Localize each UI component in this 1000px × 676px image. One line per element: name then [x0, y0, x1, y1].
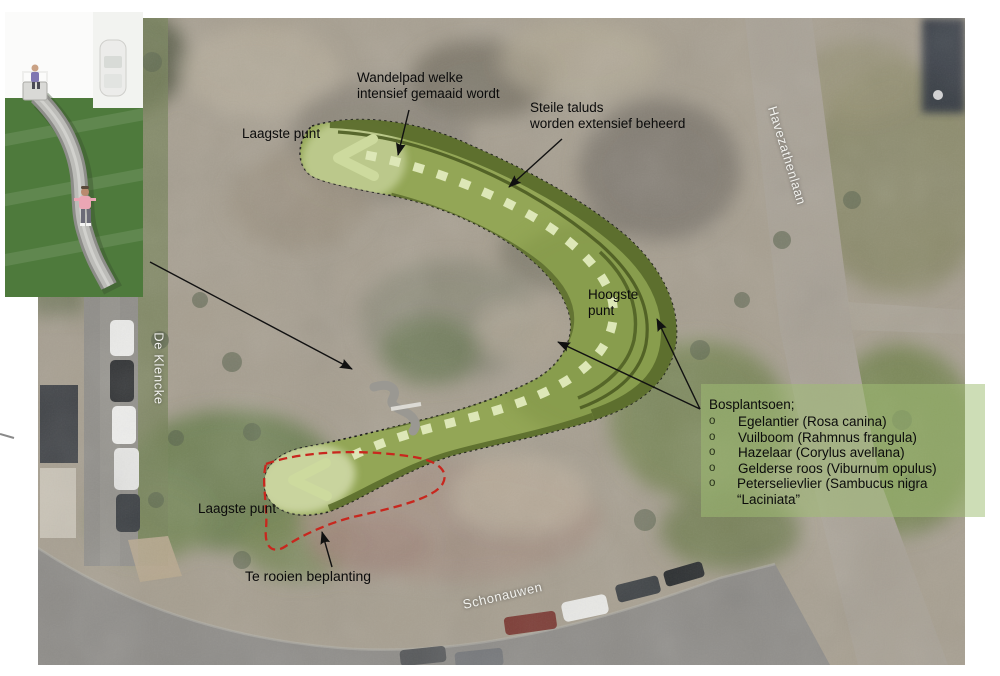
planting-list-item: o Peterselievlier (Sambucus nigra “Lacin… [701, 476, 985, 507]
planting-item-label: Hazelaar (Corylus avellana) [738, 445, 905, 461]
steile-taluds-label: Steile taluds worden extensief beheerd [530, 100, 685, 132]
planting-list: o Egelantier (Rosa canina) o Vuilboom (R… [701, 414, 985, 508]
list-bullet: o [701, 461, 738, 477]
te-rooien-label: Te rooien beplanting [245, 568, 371, 584]
list-bullet: o [701, 445, 738, 461]
slide-render [5, 12, 143, 297]
photo-background [0, 2, 995, 670]
list-bullet: o [701, 430, 738, 446]
laagste-punt-top-label: Laagste punt [242, 126, 320, 142]
planting-item-label: Peterselievlier (Sambucus nigra “Lacinia… [737, 476, 985, 507]
slide-inset-image [5, 12, 143, 297]
wandelpad-label: Wandelpad welke intensief gemaaid wordt [357, 70, 500, 102]
list-bullet: o [701, 476, 737, 507]
planting-item-label: Gelderse roos (Viburnum opulus) [738, 461, 937, 477]
planting-panel: Bosplantsoen; o Egelantier (Rosa canina)… [701, 384, 985, 517]
planting-panel-title: Bosplantsoen; [709, 397, 985, 412]
edge-tick-mark [0, 434, 14, 438]
aerial-map [0, 0, 1000, 676]
laagste-punt-bottom-label: Laagste punt [198, 501, 276, 517]
hoogste-punt-label: Hoogste punt [588, 287, 638, 319]
street-name-de-klencke: De Klencke [152, 332, 167, 404]
landscape-plan-page: Wandelpad welke intensief gemaaid wordt … [0, 0, 1000, 676]
planting-list-item: o Hazelaar (Corylus avellana) [701, 445, 985, 461]
planting-item-label: Egelantier (Rosa canina) [738, 414, 887, 430]
planting-item-label: Vuilboom (Rahmnus frangula) [738, 430, 917, 446]
planting-list-item: o Egelantier (Rosa canina) [701, 414, 985, 430]
list-bullet: o [701, 414, 738, 430]
planting-list-item: o Vuilboom (Rahmnus frangula) [701, 430, 985, 446]
planting-list-item: o Gelderse roos (Viburnum opulus) [701, 461, 985, 477]
